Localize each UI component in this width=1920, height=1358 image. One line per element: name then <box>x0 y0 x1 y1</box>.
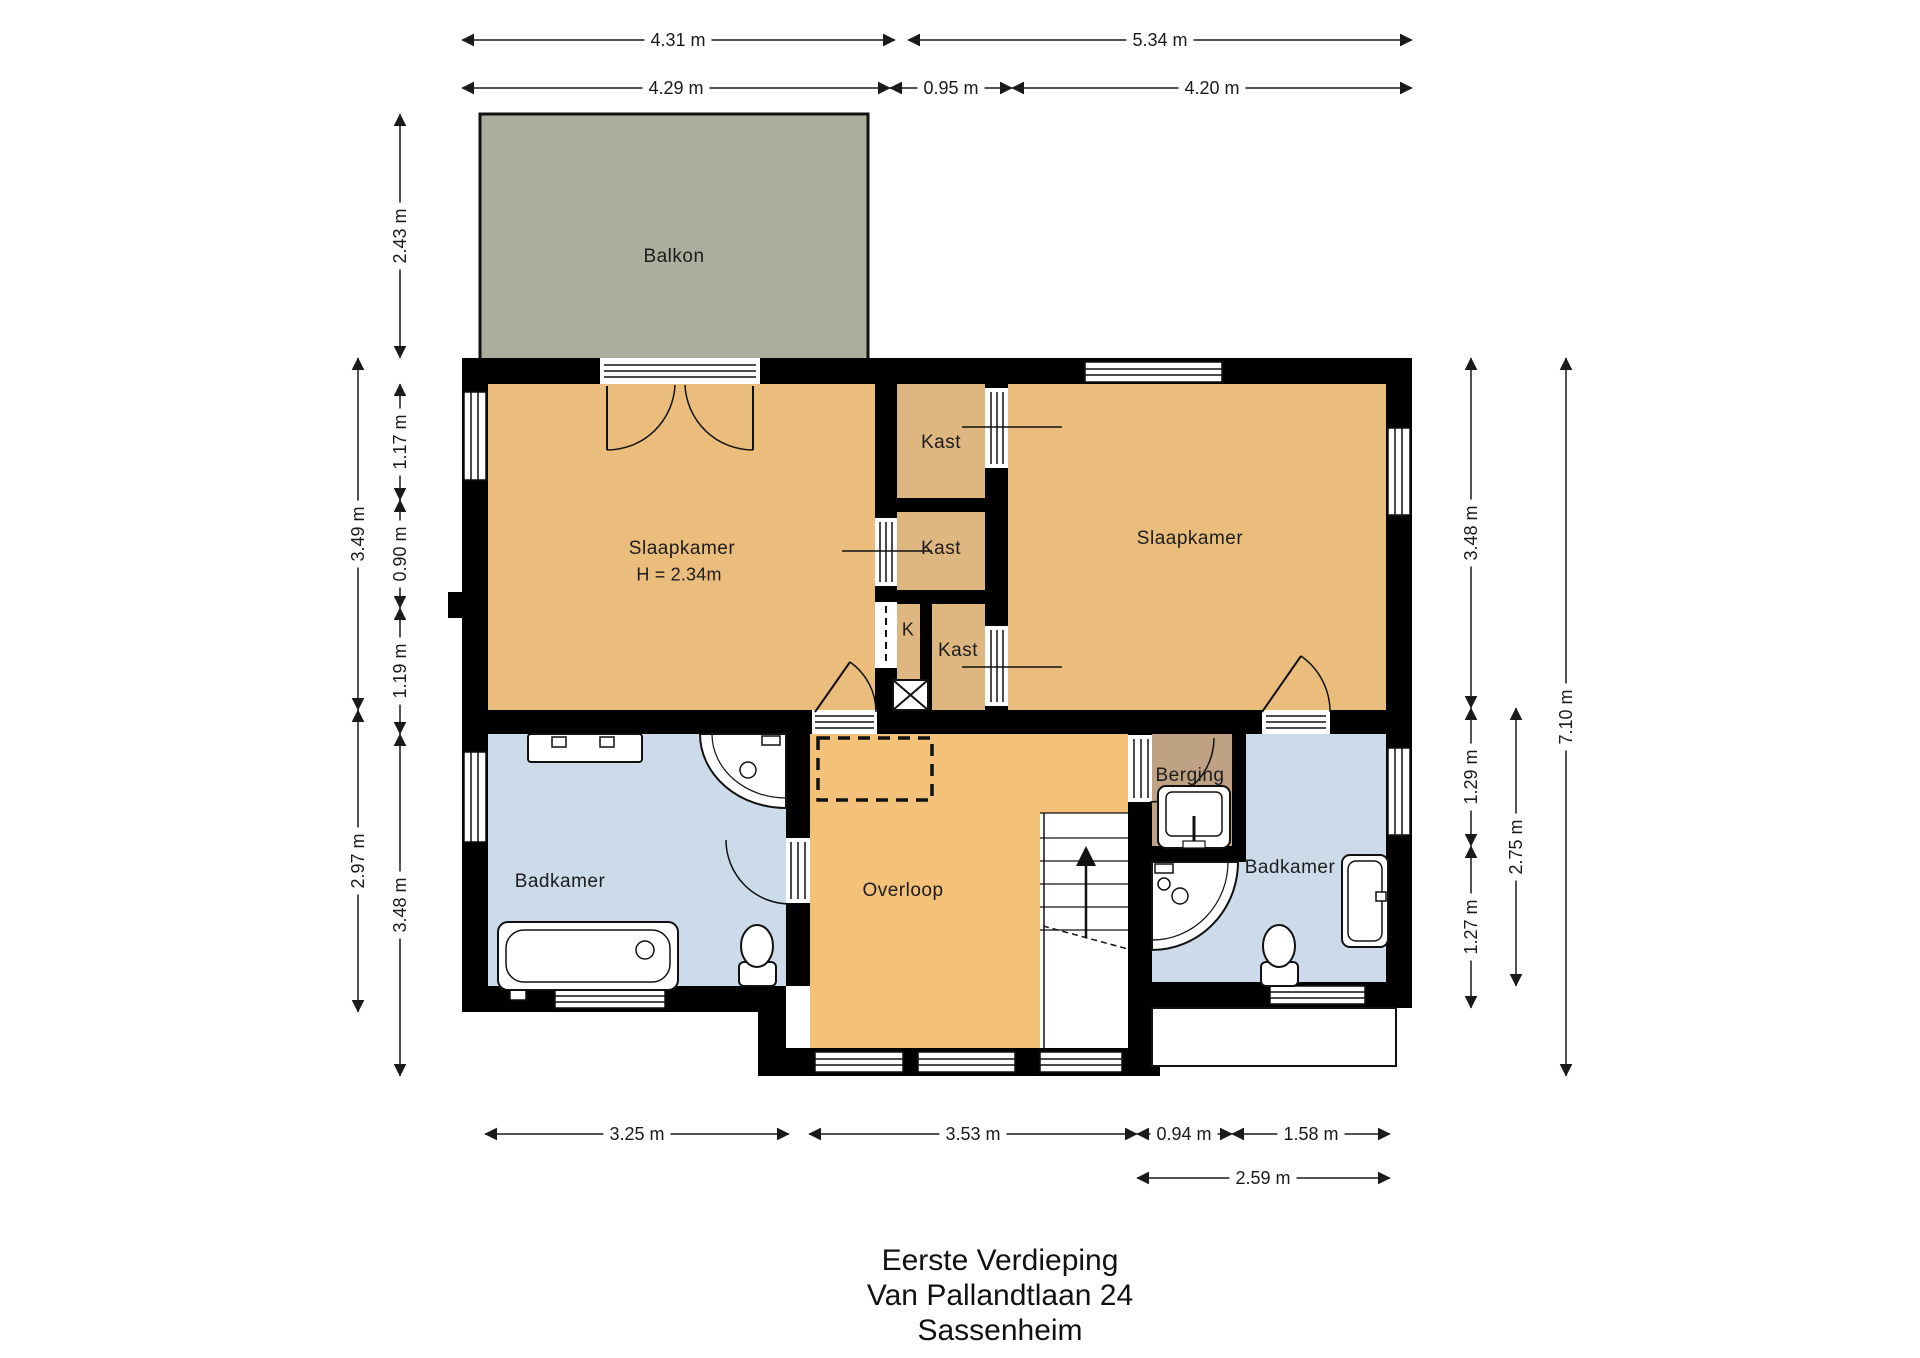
dimension-label: 0.94 m <box>1150 1123 1217 1145</box>
dimension-label: 3.49 m <box>347 500 369 567</box>
room-label-overloop: Overloop <box>862 880 943 902</box>
plan-title: Eerste Verdieping Van Pallandtlaan 24 Sa… <box>867 1243 1133 1348</box>
window-bottom-hall1 <box>815 1052 903 1072</box>
dimension-label: 1.17 m <box>389 408 411 475</box>
window-bottom-hall2 <box>918 1052 1015 1072</box>
bathtub-icon <box>498 922 678 1000</box>
dimension-label: 0.95 m <box>917 77 984 99</box>
dimension-label: 2.59 m <box>1229 1167 1296 1189</box>
window-top-right <box>1085 362 1222 382</box>
dimension-label: 1.27 m <box>1460 893 1482 960</box>
window-bottom-stairs <box>1040 1052 1122 1072</box>
dimension-label: 2.97 m <box>347 827 369 894</box>
room-fills <box>480 114 1386 1048</box>
window-right-bathroom <box>1388 748 1410 835</box>
dimension-label: 5.34 m <box>1126 29 1193 51</box>
dimension-label: 3.25 m <box>603 1123 670 1145</box>
toilet-left-icon <box>739 925 776 986</box>
window-right-bedroom <box>1388 428 1410 515</box>
dimension-label: 1.19 m <box>389 637 411 704</box>
shaft-icon <box>893 680 928 710</box>
dimension-label: 3.48 m <box>1460 499 1482 566</box>
sink-storage-icon <box>1158 786 1230 848</box>
lower-roof-outline <box>1152 1008 1396 1066</box>
room-label-height: H = 2.34m <box>636 565 721 586</box>
dimension-label: 4.20 m <box>1178 77 1245 99</box>
room-label-berging: Berging <box>1156 765 1225 787</box>
window-left-bathroom <box>464 752 486 842</box>
stairs-icon <box>1040 813 1128 1048</box>
dimension-label: 7.10 m <box>1555 683 1577 750</box>
plan-title-floor: Eerste Verdieping <box>867 1243 1133 1278</box>
dimension-label: 4.31 m <box>644 29 711 51</box>
shower-tray-icon <box>1342 855 1388 947</box>
floor-plan: 4.31 m 5.34 m 4.29 m 0.95 m 4.20 m 3.49 … <box>0 0 1920 1358</box>
room-label-kast2: Kast <box>921 538 961 560</box>
plan-title-city: Sassenheim <box>867 1313 1133 1348</box>
vanity-icon <box>528 734 642 762</box>
room-label-slaapkamer-right: Slaapkamer <box>1137 528 1243 550</box>
dimension-label: 1.58 m <box>1277 1123 1344 1145</box>
window-bottom-right <box>1270 986 1365 1004</box>
toilet-right-icon <box>1261 925 1298 986</box>
dimension-label: 3.48 m <box>389 871 411 938</box>
balcony-area <box>480 114 868 360</box>
plan-title-address: Van Pallandtlaan 24 <box>867 1278 1133 1313</box>
room-label-k: K <box>902 620 914 641</box>
room-label-kast3: Kast <box>938 640 978 662</box>
room-label-kast1: Kast <box>921 432 961 454</box>
k-opening <box>875 602 897 668</box>
dimension-label: 2.43 m <box>389 202 411 269</box>
dimension-label: 4.29 m <box>642 77 709 99</box>
room-label-badkamer-right: Badkamer <box>1245 857 1336 879</box>
window-bottom-left <box>555 990 665 1008</box>
dimension-label: 3.53 m <box>939 1123 1006 1145</box>
room-label-slaapkamer-left: Slaapkamer <box>629 538 735 560</box>
room-label-balkon: Balkon <box>643 246 704 268</box>
floor-plan-drawing <box>0 0 1920 1358</box>
dimension-label: 1.29 m <box>1460 743 1482 810</box>
window-left-bedroom <box>464 392 486 480</box>
dimension-label: 2.75 m <box>1505 813 1527 880</box>
room-label-badkamer-left: Badkamer <box>515 871 606 893</box>
dimension-label: 0.90 m <box>389 520 411 587</box>
